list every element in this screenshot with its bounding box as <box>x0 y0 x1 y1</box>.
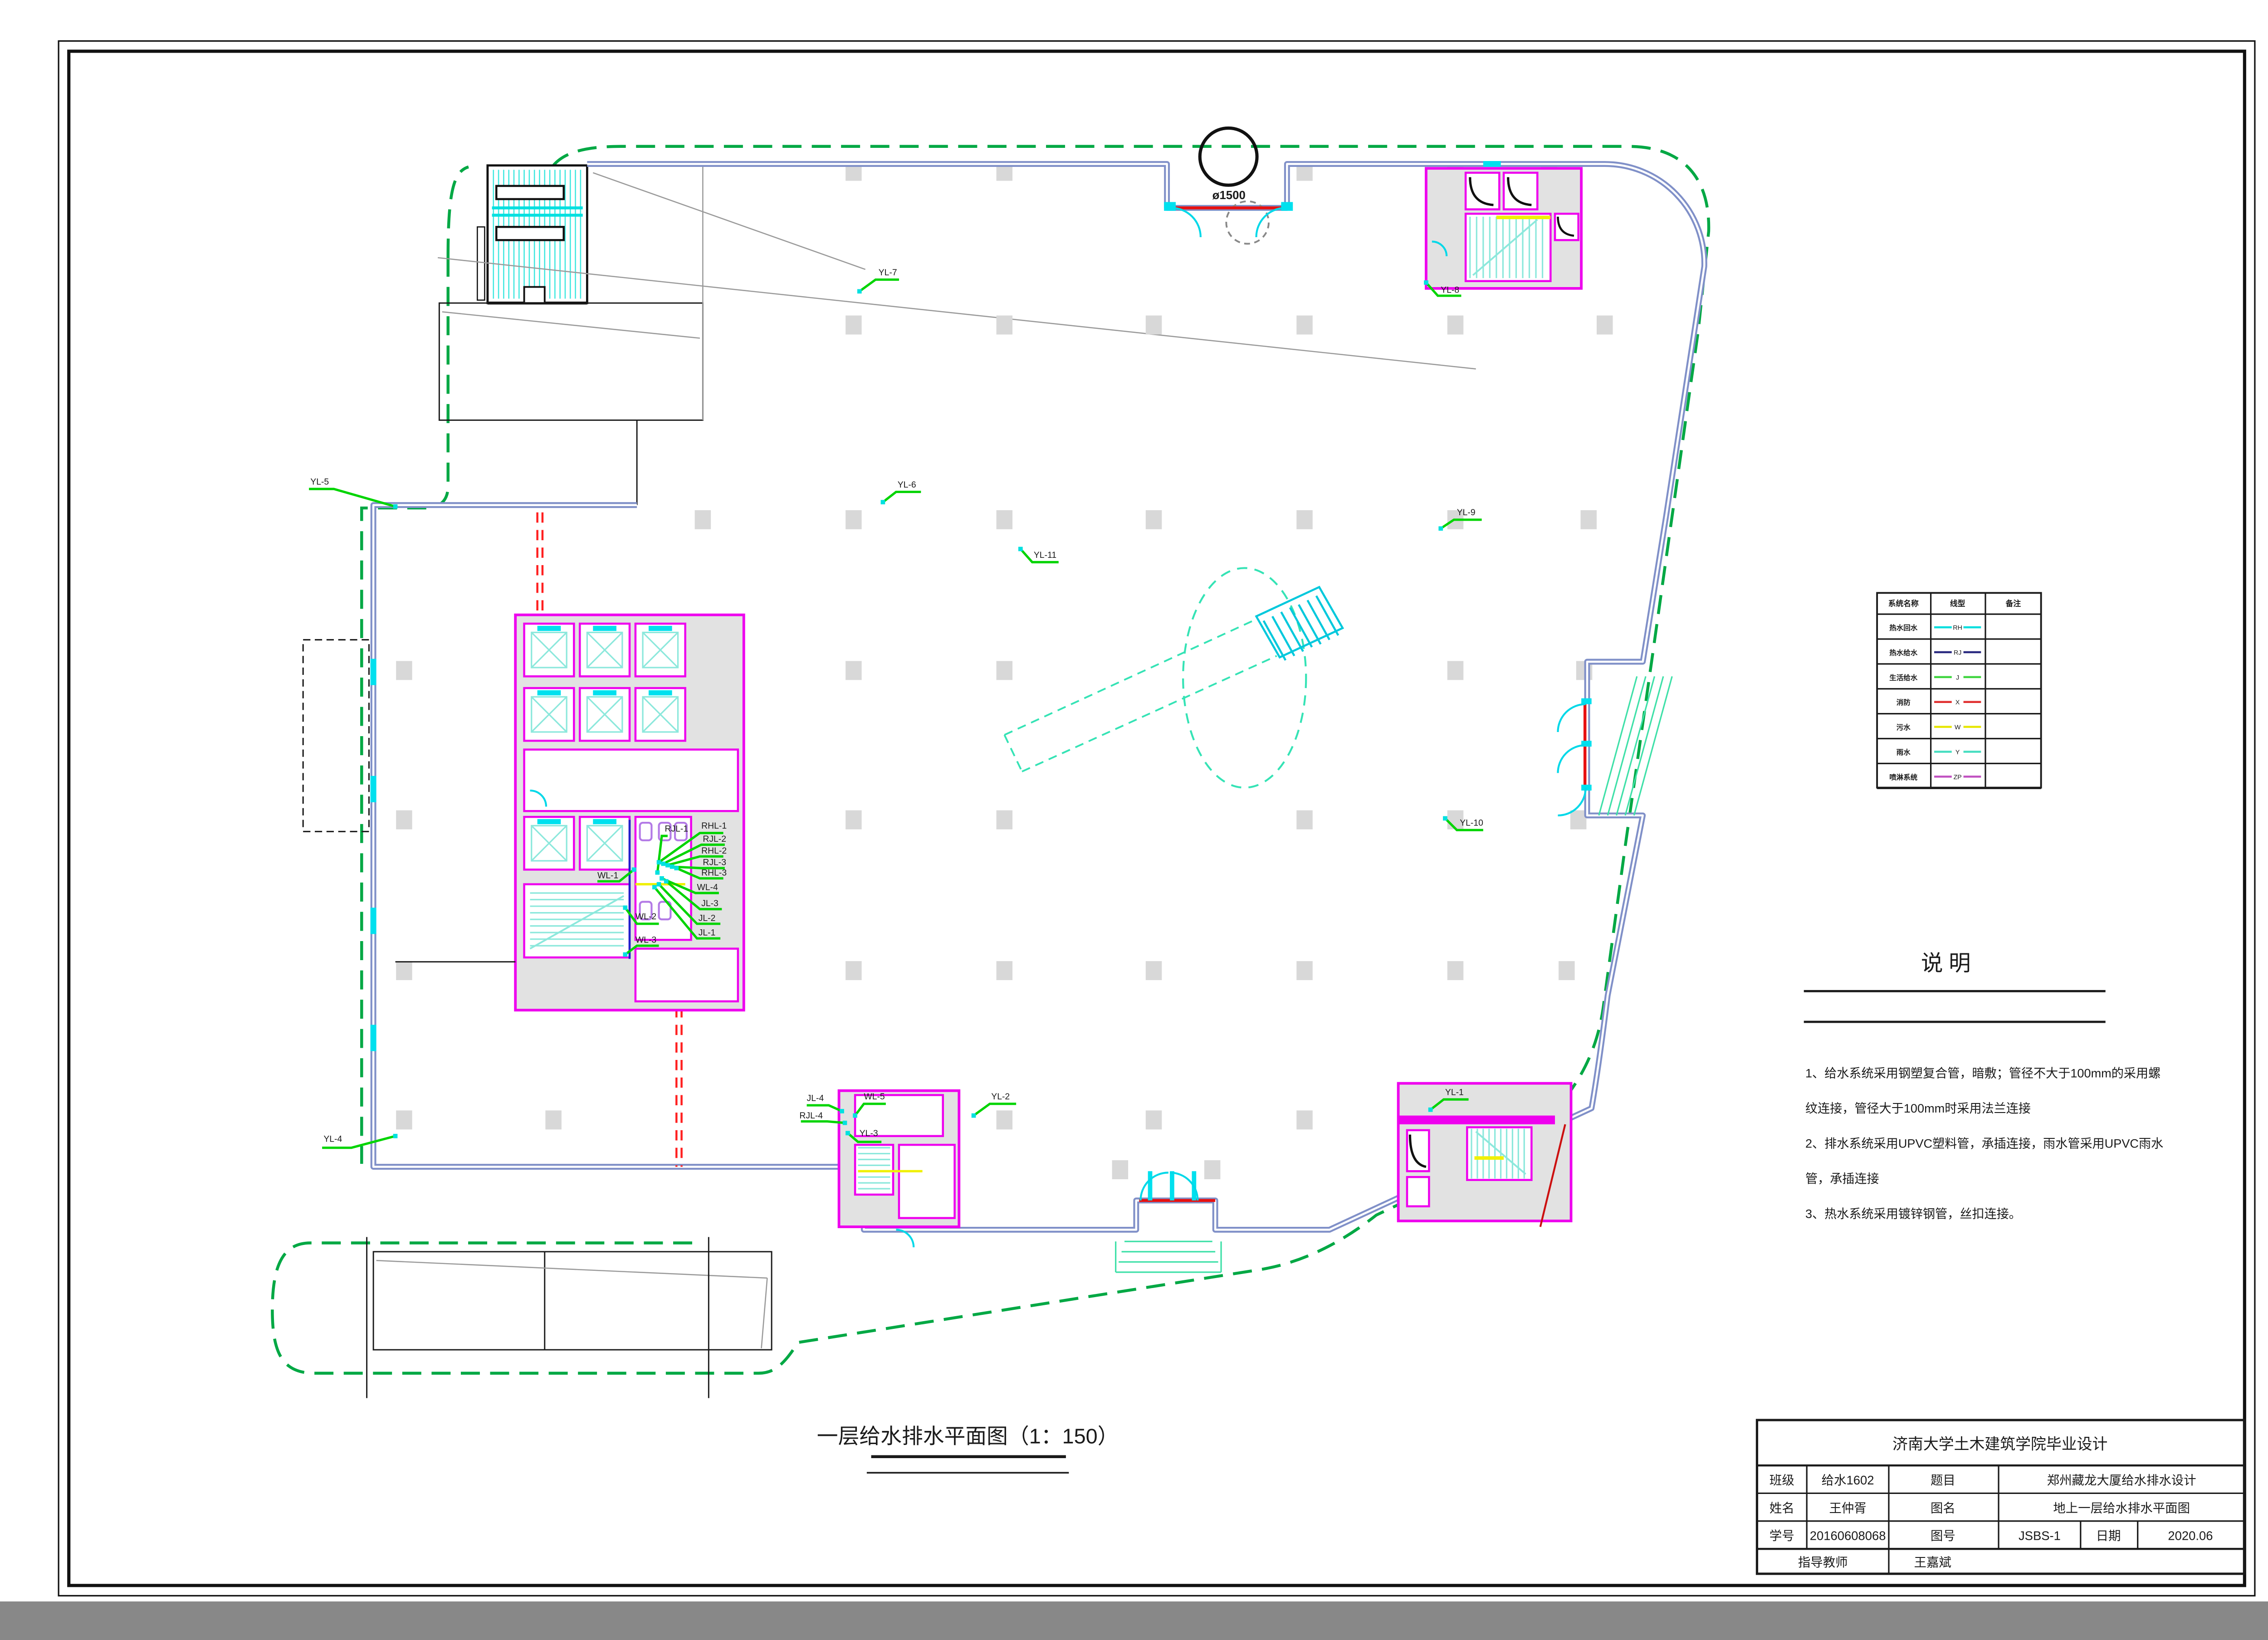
riser-dot <box>674 866 679 870</box>
riser-label: YL-3 <box>860 1128 878 1138</box>
column <box>545 1110 562 1129</box>
tb-header: 济南大学土木建筑学院毕业设计 <box>1892 1436 2107 1453</box>
riser-label: YL-1 <box>1445 1087 1464 1097</box>
riser-dot <box>846 1131 850 1136</box>
column <box>396 661 412 680</box>
legend-system-name: 热水回水 <box>1889 624 1917 632</box>
tb-name-label: 姓名 <box>1769 1501 1794 1515</box>
bottomright-core <box>1398 1084 1571 1227</box>
riser-label: YL-9 <box>1457 508 1476 517</box>
legend-header-note: 备注 <box>2005 599 2021 608</box>
notes-line-2: 纹连接，管径大于100mm时采用法兰连接 <box>1805 1101 2031 1115</box>
legend-line-code: RJ <box>1954 649 1961 657</box>
riser-label: RJL-4 <box>799 1111 823 1121</box>
legend-line-code: W <box>1955 724 1961 731</box>
riser-dot <box>840 1109 844 1113</box>
legend-system-name: 污水 <box>1897 723 1911 732</box>
riser-dot <box>1424 280 1428 285</box>
riser-label: JL-3 <box>701 898 719 908</box>
riser-label: JL-4 <box>807 1093 824 1103</box>
tb-class-value: 给水1602 <box>1822 1473 1874 1487</box>
topright-core <box>1426 168 1581 288</box>
riser-dot <box>623 905 627 910</box>
column <box>1112 1160 1129 1179</box>
legend-line-code: J <box>1956 674 1959 681</box>
legend-line-code: X <box>1955 699 1960 706</box>
tb-figno-label: 图号 <box>1931 1529 1955 1543</box>
riser-label: YL-11 <box>1034 550 1056 560</box>
tb-name-value: 王仲胥 <box>1829 1501 1866 1515</box>
column <box>1146 510 1162 529</box>
entrance-diameter-label: ø1500 <box>1212 189 1246 202</box>
riser-dot <box>1018 547 1023 552</box>
riser-label: RHL-2 <box>701 846 727 856</box>
tb-subject-label: 题目 <box>1931 1473 1955 1487</box>
column <box>1447 316 1464 335</box>
column <box>1296 510 1313 529</box>
legend-header-name: 系统名称 <box>1888 599 1919 608</box>
riser-label: YL-8 <box>1441 285 1459 295</box>
column <box>396 810 412 830</box>
column <box>1146 1110 1162 1129</box>
riser-dot <box>1438 526 1443 531</box>
riser-label: RJL-3 <box>703 858 726 868</box>
column <box>997 510 1013 529</box>
riser-dot <box>632 868 636 872</box>
column <box>1296 810 1313 830</box>
notes-title: 说明 <box>1921 951 1977 976</box>
riser-dot <box>655 870 660 875</box>
notes-line-1: 1、给水系统采用钢塑复合管，暗敷；管径不大于100mm的采用螺 <box>1805 1066 2160 1080</box>
riser-dot <box>393 1134 398 1138</box>
column <box>846 661 862 680</box>
drawing-sheet: ø1500 <box>0 0 2268 1601</box>
column <box>997 316 1013 335</box>
column <box>997 810 1013 830</box>
tb-figure-value: 地上一层给水排水平面图 <box>2053 1501 2190 1515</box>
riser-dot <box>853 1113 857 1118</box>
column <box>1447 661 1464 680</box>
column <box>997 1110 1013 1129</box>
column <box>846 810 862 830</box>
riser-label: WL-2 <box>635 912 656 922</box>
riser-dot <box>1428 1108 1433 1112</box>
riser-label: JL-2 <box>699 913 716 923</box>
tb-advisor-label: 指导教师 <box>1798 1555 1848 1569</box>
tb-class-label: 班级 <box>1769 1473 1794 1487</box>
riser-label: WL-4 <box>697 883 718 893</box>
column <box>846 961 862 980</box>
column <box>1146 316 1162 335</box>
tb-figno-value: JSBS-1 <box>2019 1529 2061 1543</box>
tb-subject-value: 郑州藏龙大厦给水排水设计 <box>2047 1473 2196 1487</box>
column <box>846 510 862 529</box>
column <box>1296 961 1313 980</box>
riser-label: YL-7 <box>879 268 897 278</box>
column <box>1146 961 1162 980</box>
riser-dot <box>670 864 675 869</box>
column <box>396 1110 412 1129</box>
riser-dot <box>843 1121 847 1125</box>
riser-dot <box>1443 816 1447 821</box>
column <box>1204 1160 1221 1179</box>
column <box>846 316 862 335</box>
column <box>1296 316 1313 335</box>
tb-figure-label: 图名 <box>1931 1501 1955 1515</box>
legend-line-code: RH <box>1953 625 1962 632</box>
notes-line-3: 2、排水系统采用UPVC塑料管，承插连接，雨水管采用UPVC雨水 <box>1805 1137 2163 1151</box>
riser-label: JL-1 <box>699 928 716 938</box>
tb-id-label: 学号 <box>1769 1529 1794 1543</box>
legend-line-code: ZP <box>1954 774 1962 781</box>
tb-advisor-value: 王嘉斌 <box>1914 1555 1951 1569</box>
riser-label: WL-1 <box>597 871 618 881</box>
notes-line-5: 3、热水系统采用镀锌钢管，丝扣连接。 <box>1805 1207 2021 1221</box>
riser-label: WL-5 <box>864 1092 885 1102</box>
riser-label: YL-5 <box>310 477 329 487</box>
legend-system-name: 生活给水 <box>1889 673 1917 682</box>
riser-dot <box>660 876 664 881</box>
column <box>997 961 1013 980</box>
column <box>1447 961 1464 980</box>
paper <box>0 0 2268 1601</box>
legend-system-name: 雨水 <box>1897 748 1911 757</box>
column <box>1597 316 1613 335</box>
riser-dot <box>657 860 661 864</box>
notes-line-4: 管，承插连接 <box>1805 1171 1879 1186</box>
riser-dot <box>664 879 669 883</box>
riser-label: YL-4 <box>323 1134 342 1144</box>
column <box>1296 1110 1313 1129</box>
legend-header-linetype: 线型 <box>1950 599 1965 608</box>
riser-dot <box>972 1113 976 1118</box>
riser-label: RJL-2 <box>703 834 726 844</box>
riser-label: YL-2 <box>991 1092 1010 1102</box>
riser-dot <box>661 862 665 866</box>
riser-label: YL-6 <box>898 480 916 490</box>
tb-id-value: 20160608068 <box>1810 1529 1886 1543</box>
riser-label: YL-10 <box>1460 818 1483 828</box>
riser-label: RJL-1 <box>665 824 688 834</box>
riser-dot <box>652 885 657 889</box>
plan-svg: ø1500 <box>0 0 2268 1601</box>
riser-label: RHL-1 <box>701 821 727 831</box>
column <box>1570 810 1587 830</box>
legend-line-code: Y <box>1955 749 1960 756</box>
riser-dot <box>881 500 885 504</box>
tb-date-label: 日期 <box>2096 1529 2121 1543</box>
riser-dot <box>657 882 661 887</box>
riser-dot <box>665 863 670 868</box>
riser-dot <box>623 952 627 957</box>
riser-label: RHL-3 <box>701 868 727 878</box>
drawing-title-text: 一层给水排水平面图（1：150） <box>817 1425 1119 1448</box>
tb-date-value: 2020.06 <box>2168 1529 2213 1543</box>
legend-system-name: 消防 <box>1897 698 1911 707</box>
column <box>997 661 1013 680</box>
riser-dot <box>857 289 862 294</box>
riser-dot <box>393 504 398 509</box>
riser-label: WL-3 <box>635 935 656 945</box>
column <box>1559 961 1575 980</box>
column <box>695 510 711 529</box>
column <box>1581 510 1597 529</box>
column <box>396 961 412 980</box>
legend-system-name: 喷淋系统 <box>1889 773 1917 781</box>
legend-system-name: 热水给水 <box>1889 648 1917 657</box>
